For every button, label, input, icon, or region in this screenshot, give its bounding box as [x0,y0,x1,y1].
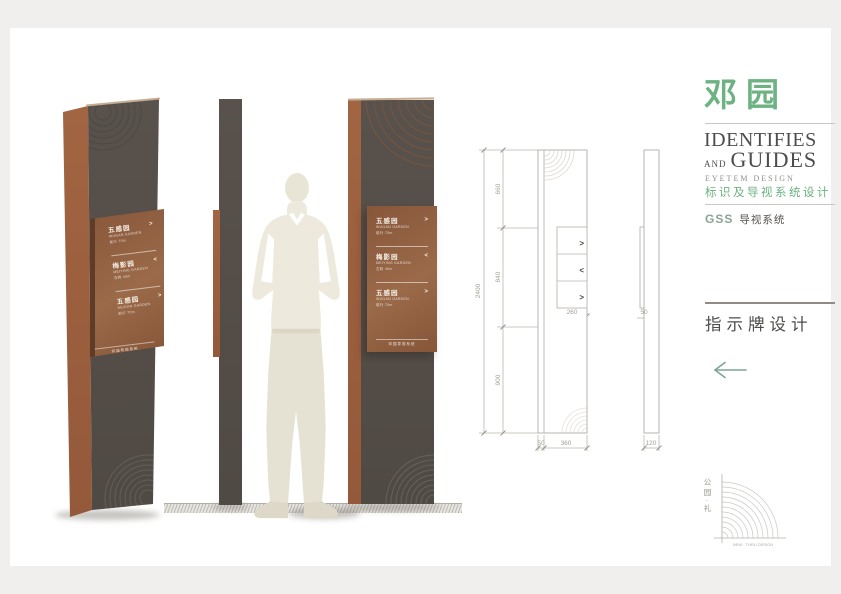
wordmark-guides: GUIDES [731,147,818,172]
direction-entry: 五感园> WUGAN GARDEN 前行 70m [116,286,164,317]
series-label: GSS导视系统 [705,210,785,228]
destination-sub: 左转 40m [376,267,428,273]
divider [376,282,428,283]
destination-label: 梅影园 [376,251,399,261]
system-subtitle-cn: 标识及导视系统设计 [705,184,831,200]
divider [705,204,835,205]
direction-entry: 五感园> WUGAN GARDEN 前行 70m [376,215,428,236]
destination-label: 五感园 [376,287,399,297]
destination-sub: 前行 70m [376,303,428,309]
fan-logo-icon: NEW · THRU DESIGN [700,462,795,554]
direction-entry: 五感园> WUGAN GARDEN 前行 70m [107,219,154,246]
panel-content: 五感园> WUGAN GARDEN 前行 70m 梅影园< MEIYING GA… [367,206,437,309]
sign-panel-left: 五感园> WUGAN GARDEN 前行 70m 梅影园< MEIYING GA… [86,208,164,358]
direction-arrow: < [153,257,157,263]
drawing-arrow: > [579,239,584,248]
fan-vertical-caption: 公园·礼 [702,478,713,515]
direction-arrow: > [158,293,162,299]
sign-panel-right: 五感园> WUGAN GARDEN 前行 70m 梅影园< MEIYING GA… [367,206,437,352]
dim-panel-depth: 50 [640,309,648,316]
direction-entry: 五感园> WUGAN GARDEN 前行 70m [376,282,428,308]
direction-entry: 梅影园< MEIYING GARDEN 左转 40m [111,250,159,281]
dim-segment-bottom: 900 [495,374,502,385]
direction-arrow: > [149,221,153,227]
divider-strong [705,302,835,304]
human-figure [241,170,351,527]
series-code: GSS [705,212,733,226]
direction-arrow: < [424,253,428,259]
direction-entry: 梅影园< MEIYING GARDEN 左转 40m [376,246,428,272]
panel-side-edge [90,216,95,358]
direction-arrow: > [424,217,428,223]
wordmark-line2: AND GUIDES [704,149,817,171]
dim-segment-top: 660 [495,183,502,194]
panel-footer: 邓园导视系统 [376,339,428,347]
dim-edge-width: 50 [537,440,545,447]
pillar-side-view [219,99,242,505]
design-board: 五感园> WUGAN GARDEN 前行 70m 梅影园< MEIYING GA… [0,0,841,594]
dim-panel-width: 260 [567,309,578,316]
technical-drawing: > < > 2400 660 840 900 260 50 360 50 120 [470,135,685,460]
dim-face-width: 360 [561,440,572,447]
destination-sub: 前行 70m [376,231,428,237]
fan-caption: NEW · THRU DESIGN [733,542,773,547]
back-arrow-icon [712,360,748,380]
section-title: 指示牌设计 [705,311,813,335]
pillar-shadow [344,504,440,511]
wordmark-and: AND [704,159,727,169]
drawing-arrow: > [579,293,584,302]
divider [705,123,835,124]
series-name: 导视系统 [739,214,785,226]
studio-name: EYETEM DESIGN [705,174,795,183]
pillar-side-view-panel-edge [213,210,220,357]
dim-total-height: 2400 [475,283,482,298]
park-logo: 邓园 [704,68,788,116]
divider [376,246,428,247]
direction-arrow: > [424,289,428,295]
dim-side-width: 120 [646,440,657,447]
drawing-arrow: < [579,266,584,275]
dim-segment-mid: 840 [495,271,502,282]
destination-label: 五感园 [376,215,399,225]
